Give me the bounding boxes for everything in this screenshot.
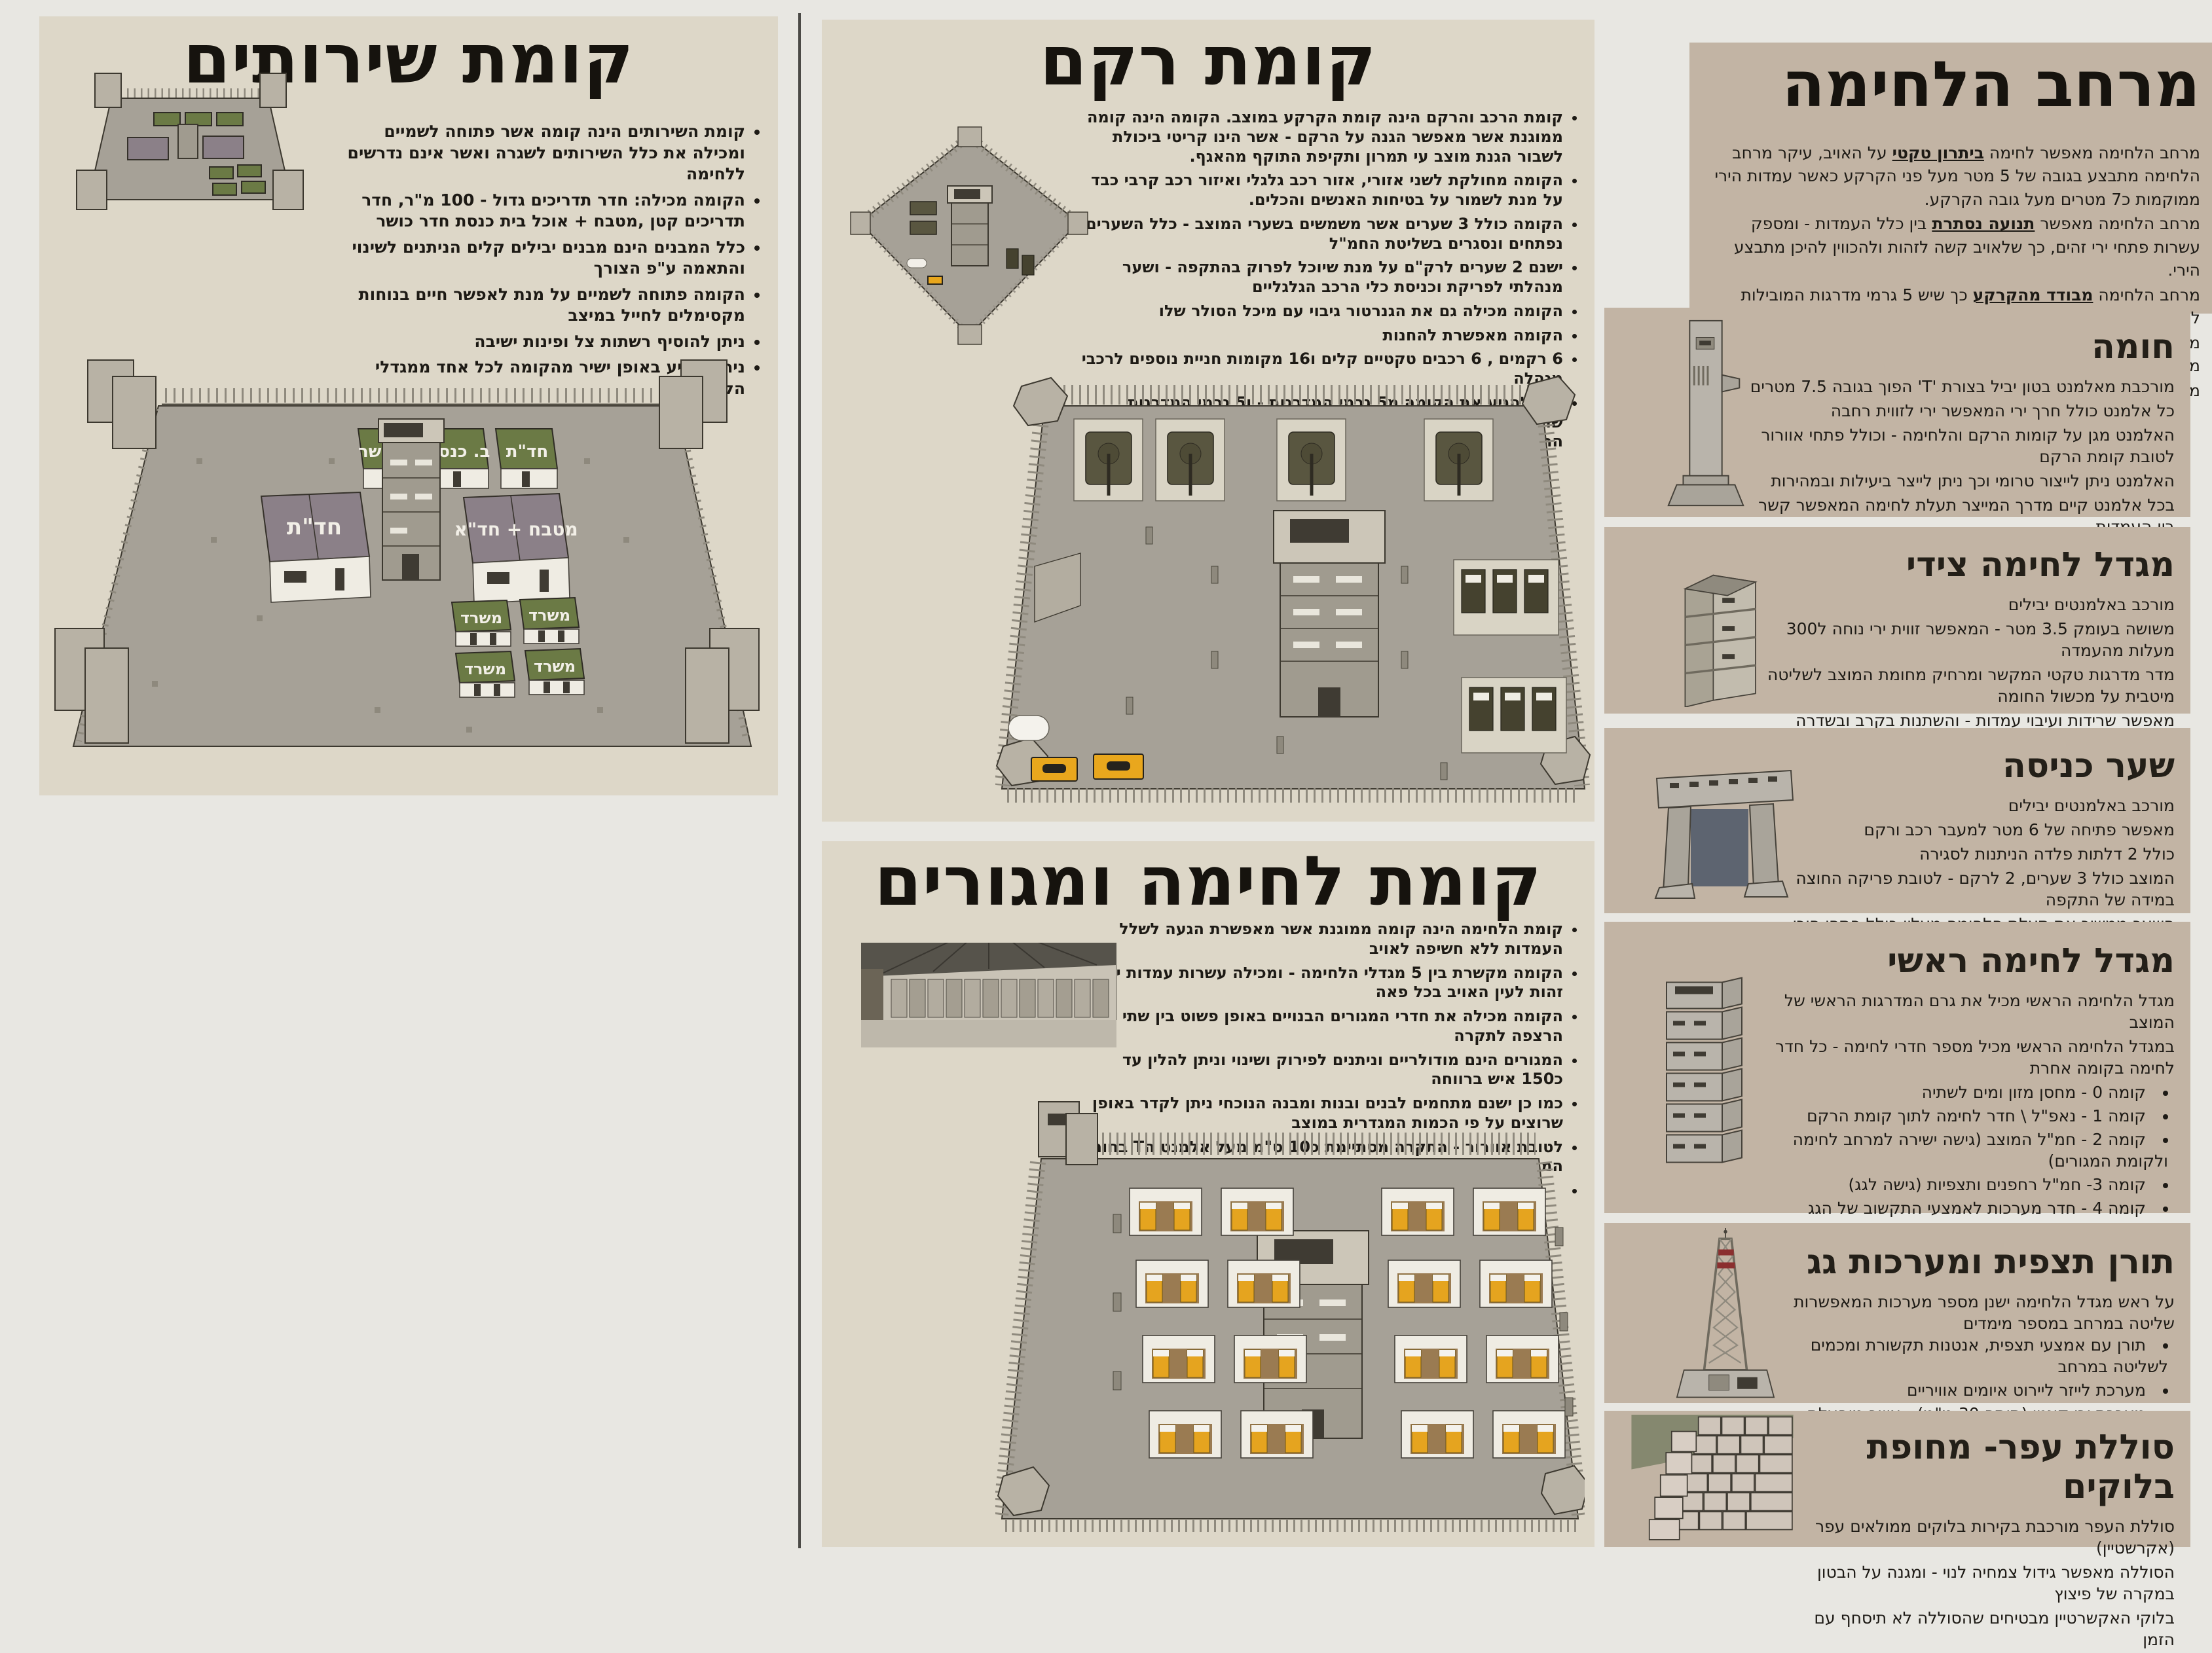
bullet-item: קומה 2 - חמ"ל המוצב (גישה ישירה למרחב לח…	[1771, 1129, 2168, 1172]
bullet-item: הסוללה מאפשר גידול צמחיה לנוי - ומגנה על…	[1814, 1561, 2175, 1605]
wall-section-title: חומה	[1745, 327, 2175, 367]
observation-mast-image	[1667, 1228, 1784, 1400]
bullet-item: הקומה מכילה גם את הגנרטור גיבוי עם מיכל …	[1075, 302, 1563, 321]
combat-floor-title: קומת לחימה ומגורים	[822, 844, 1594, 918]
combat-floor-corridor-inset	[861, 943, 1116, 1047]
bullet-item: הקומה מקשרת בין 5 מגדלי הלחימה - ומכילה …	[1075, 964, 1563, 1003]
intro-paragraph: מרחב הלחימה מאפשר לחימה ביתרון טקטי על ה…	[1703, 141, 2200, 211]
svg-text:משרד: משרד	[528, 606, 570, 625]
rkm-floor-main-diagram	[995, 370, 1591, 815]
bullet-item: במגדל הלחימה הראשי מכיל מספר חדרי לחימה …	[1771, 1036, 2175, 1079]
bullet-item: כל אלמנט כולל חרך ירי המאפשר ירי לזווית …	[1745, 400, 2175, 422]
central-tower	[378, 419, 444, 580]
side-tower-image	[1667, 566, 1771, 707]
main-tower-image	[1657, 964, 1755, 1171]
svg-text:משרד: משרד	[464, 660, 506, 678]
services-floor-panel: קומת שירותים קומת השירותים הינה קומה אשר…	[39, 16, 778, 795]
bullet-item: הקומה כולל 3 שערים אשר משמשים בשערי המוצ…	[1075, 215, 1563, 254]
bullet-item: משושה בעומק 3.5 מטר - המאפשר זווית ירי נ…	[1755, 618, 2175, 661]
berm-section-title: סוללת עפר- מחופת בלוקים	[1814, 1428, 2175, 1506]
bullet-item: מורכב באלמנטים יבילים	[1755, 594, 2175, 615]
bullet-item: סוללת העפר מורכבת בקירות בלוקים ממולאים …	[1814, 1516, 2175, 1559]
poster-combat-outpost: { "left_panel": { "title": "קומת שירותים…	[0, 0, 2212, 1548]
corridor-doorway	[861, 969, 883, 1024]
central-tower	[1274, 511, 1385, 717]
bullet-item: קומה 0 - מחסן מזון ומים לשתיה	[1771, 1081, 2168, 1103]
column-divider-line	[798, 13, 801, 1548]
fuel-tank	[1008, 716, 1049, 740]
main-tower-section-box: מגדל לחימה ראשי מגדל הלחימה הראשי מכיל א…	[1604, 922, 2190, 1213]
bullet-item: ישנם 2 שערים לרק"ם על מנת שיוכל לפרוק בה…	[1075, 258, 1563, 297]
bullet-item: מאפשר פתיחה של 6 מטר למעבר רכב ורקם	[1758, 819, 2175, 841]
wall-element-image	[1667, 316, 1745, 509]
entrance-gate-image	[1650, 762, 1801, 899]
bullet-item: קומה 1 - נאפ"ל \ חדר לחימה לתוך קומת הרק…	[1771, 1105, 2168, 1127]
mast-lead-line: על ראש מגדל הלחימה ישנן מספר מערכות המאפ…	[1765, 1291, 2175, 1334]
bullet-item: הקומה פתוחה לשמיים על מנת לאפשר חיים בנו…	[339, 284, 745, 327]
combat-space-intro-box: מרחב הלחימה מרחב הלחימה מאפשר לחימה ביתר…	[1689, 43, 2212, 314]
bullet-item: האלמנט מגן על קומות הרקם והלחימה - וכולל…	[1745, 424, 2175, 467]
earth-berm-blocks-image	[1617, 1415, 1807, 1543]
rkm-floor-thumbnail-diagram	[848, 124, 1090, 347]
bullet-item: המוצב כולל 3 שערים, 2 לרקם - לטובת פריקה…	[1758, 867, 2175, 911]
berm-section-lines: סוללת העפר מורכבת בקירות בלוקים ממולאים …	[1814, 1516, 2175, 1650]
gate-tower	[1039, 1102, 1097, 1165]
tank-bays	[1074, 419, 1493, 501]
bullet-item: כלל המבנים הינם מבנים יבילים קלים הניתני…	[339, 237, 745, 280]
bullet-item: מורכב באלמנטים יבילים	[1758, 795, 2175, 816]
bullet-item: הקומה מחולקת לשני אזורי, אזור רכב גלגלי …	[1075, 171, 1563, 210]
services-floor-plan-diagram: ח. כושר ב. כנסת חד"ת	[47, 340, 767, 792]
bullet-item: מערכת לייזר ליירוט איומים אוויריים	[1765, 1379, 2168, 1401]
rkm-floor-panel: קומת רקם קומת הרכב והרקם הינה קומת הקרקע…	[822, 20, 1594, 822]
combat-space-title: מרחב הלחימה	[1703, 52, 2200, 118]
large-briefing-building: חד"ת	[261, 492, 371, 602]
main-tower-lead-lines: מגדל הלחימה הראשי מכיל את גרם המדרגות הר…	[1771, 990, 2175, 1079]
bullet-item: קומת הלחימה הינה קומה ממוגנת אשר מאפשרת …	[1075, 920, 1563, 959]
small-briefing-building: חד"ת	[496, 429, 557, 488]
bullet-item: המגורים הינם מודולריים וניתנים לפירוק וש…	[1075, 1051, 1563, 1090]
rkm-floor-title: קומת רקם	[822, 24, 1594, 98]
svg-text:חד"ת: חד"ת	[506, 442, 548, 462]
side-tower-section-box: מגדל לחימה צידי מורכב באלמנטים יביליםמשו…	[1604, 527, 2190, 714]
svg-text:משרד: משרד	[534, 657, 576, 676]
bullet-item: קומה 3- חמ"ל רחפנים ותצפיות (גישה לגג)	[1771, 1174, 2168, 1195]
gate-section-box: שער כניסה מורכב באלמנטים יביליםמאפשר פתי…	[1604, 728, 2190, 913]
svg-text:משרד: משרד	[460, 609, 502, 627]
bullet-item: קומה 4 - חדר מערכות לאמצעי התקשוב של הגג	[1771, 1197, 2168, 1219]
bullet-item: מדר מדרגות טקטי המקשר ומרחיק מחומת המוצב…	[1755, 664, 2175, 707]
mast-section-box: תורן תצפית ומערכות גג על ראש מגדל הלחימה…	[1604, 1223, 2190, 1403]
bullet-item: הקומה מכילה: חדר תדריכים גדול - 100 מ"ר,…	[339, 190, 745, 232]
intro-paragraph: מרחב הלחימה מאפשר תנועה נסתרת בין כלל הע…	[1703, 212, 2200, 282]
main-tower-section-title: מגדל לחימה ראשי	[1771, 941, 2175, 981]
combat-floor-main-diagram	[995, 1097, 1585, 1548]
bullet-item: האלמנט ניתן לייצור טרומי וכך ניתן לייצר …	[1745, 470, 2175, 492]
wall-section-box: חומה מורכבת מאלמנט בטון יביל בצורת 'T' ה…	[1604, 308, 2190, 517]
combat-floor-panel: קומת לחימה ומגורים קומת הלחימה הינה קומה…	[822, 841, 1594, 1547]
berm-section-box: סוללת עפר- מחופת בלוקים סוללת העפר מורכב…	[1604, 1411, 2190, 1547]
bullet-item: קומת השירותים הינה קומה אשר פתוחה לשמיים…	[339, 121, 745, 185]
bullet-item: מגדל הלחימה הראשי מכיל את גרם המדרגות הר…	[1771, 990, 2175, 1033]
bullet-item: מורכבת מאלמנט בטון יביל בצורת 'T' הפוך ב…	[1745, 376, 2175, 397]
svg-text:מטבח + חד"א: מטבח + חד"א	[454, 518, 578, 540]
mast-section-title: תורן תצפית ומערכות גג	[1765, 1243, 2175, 1282]
gate-section-title: שער כניסה	[1758, 746, 2175, 786]
side-tower-section-title: מגדל לחימה צידי	[1755, 545, 2175, 585]
bullet-item: הקומה מאפשרת להחנות	[1075, 326, 1563, 346]
bullet-item: כולל 2 דלתות פלדה הניתנות לסגירה	[1758, 843, 2175, 865]
bullet-item: בלוקי האקשרטיין מבטיחים שהסוללה לא תיסחף…	[1814, 1607, 2175, 1650]
bullet-item: הקומה מכילה את חדרי המגורים הבנויים באופ…	[1075, 1007, 1563, 1046]
bullet-item: תורן עם אמצעי תצפית, אנטנות תקשורת ומכמי…	[1765, 1334, 2168, 1377]
bullet-item: קומת הרכב והרקם הינה קומת הקרקע במוצב. ה…	[1075, 108, 1563, 166]
svg-text:חד"ת: חד"ת	[287, 514, 342, 540]
services-floor-thumbnail-diagram	[75, 52, 304, 223]
